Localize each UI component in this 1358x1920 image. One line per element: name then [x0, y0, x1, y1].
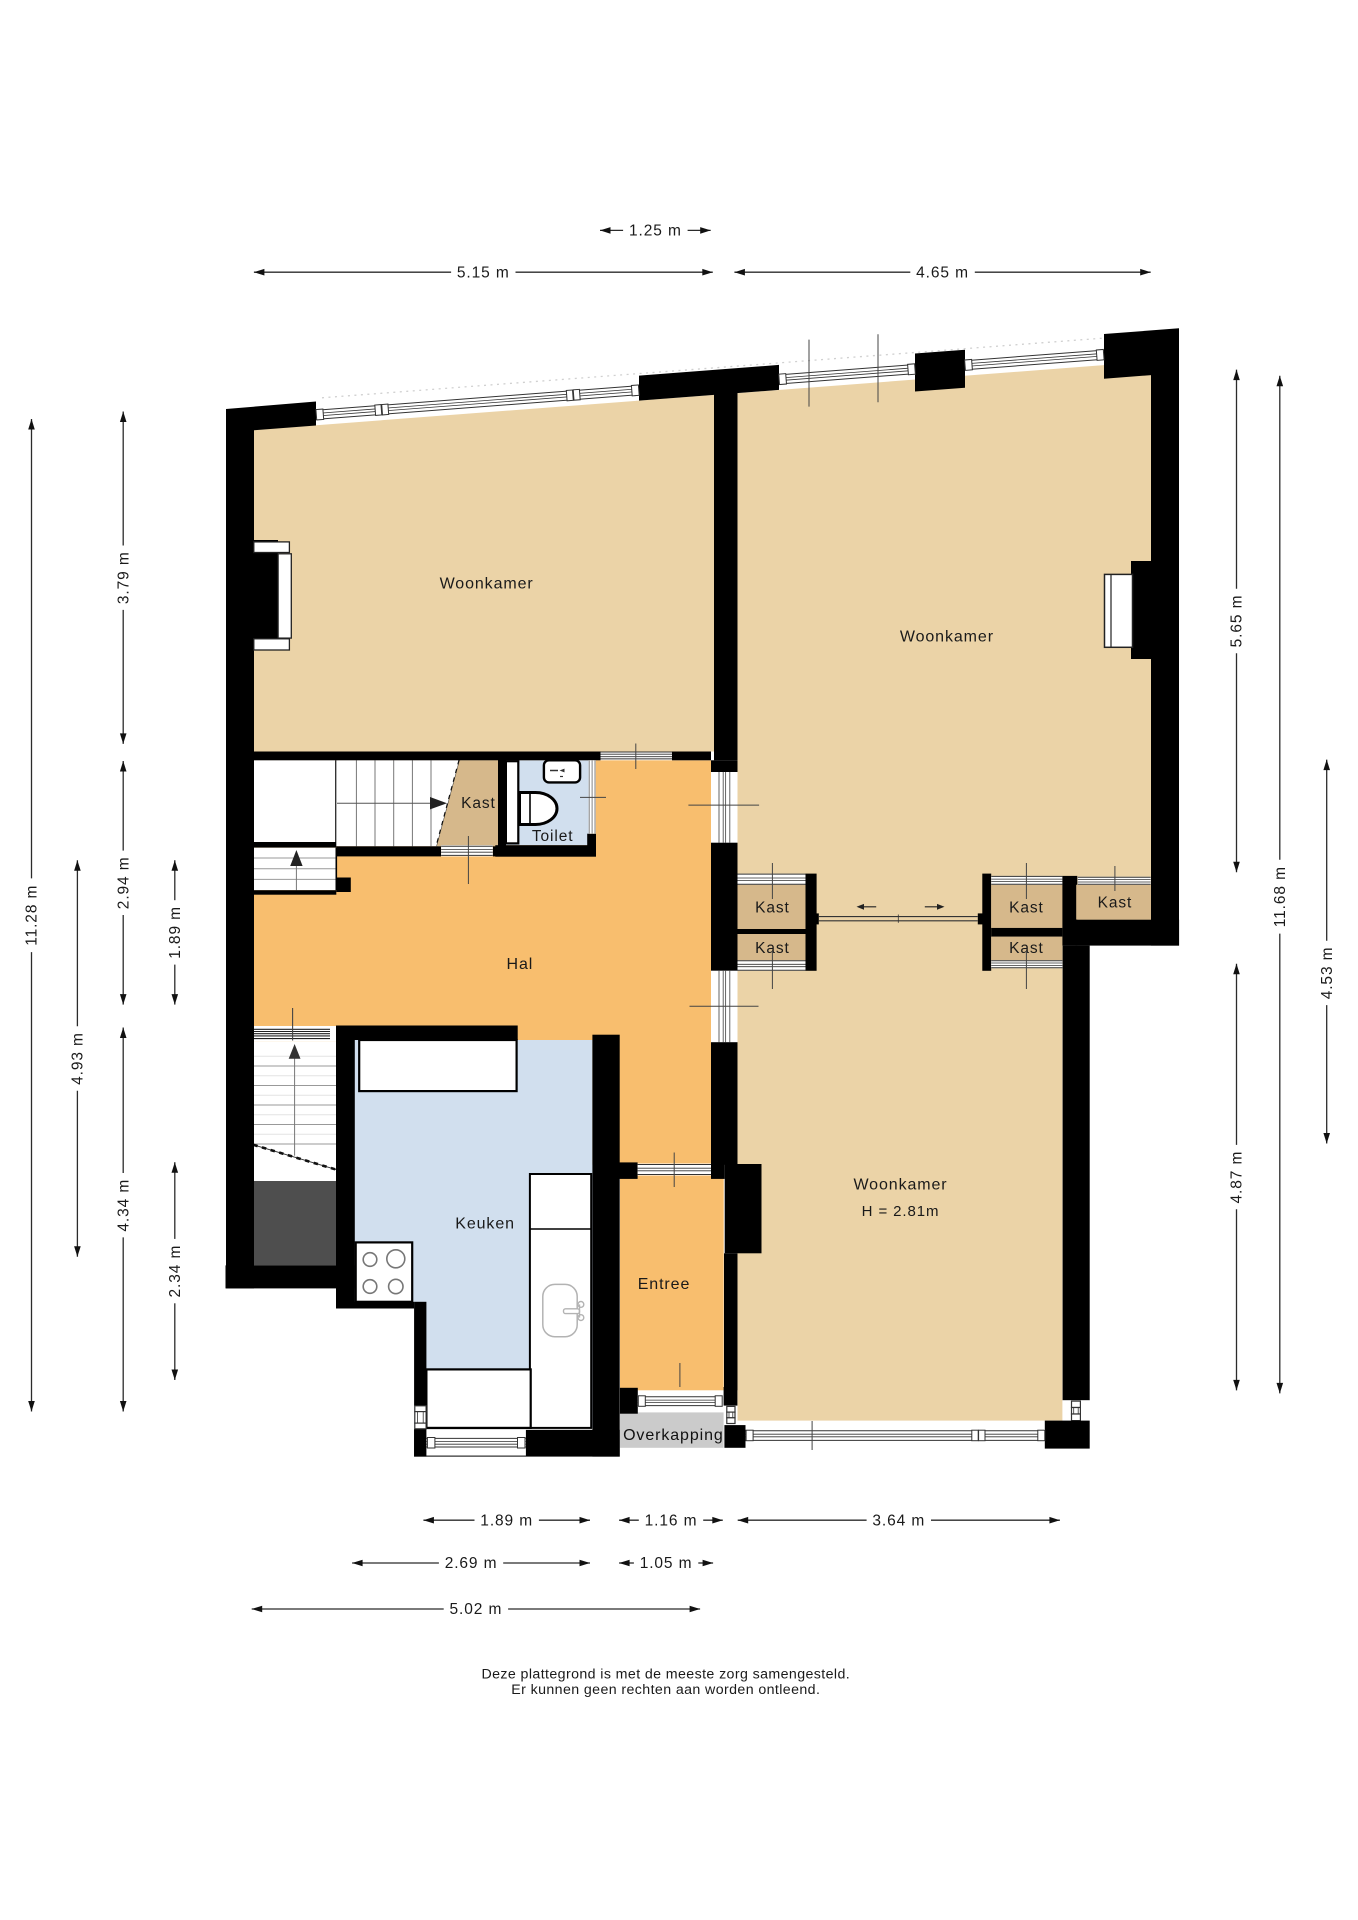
svg-text:Woonkamer: Woonkamer: [853, 1176, 947, 1193]
svg-text:3.79 m: 3.79 m: [115, 551, 132, 604]
svg-text:11.28 m: 11.28 m: [24, 885, 41, 946]
svg-text:4.93 m: 4.93 m: [70, 1032, 87, 1085]
svg-text:1.16 m: 1.16 m: [645, 1512, 698, 1529]
svg-text:2.69 m: 2.69 m: [445, 1555, 498, 1572]
svg-text:Deze plattegrond is met de mee: Deze plattegrond is met de meeste zorg s…: [482, 1666, 851, 1682]
svg-text:Overkapping: Overkapping: [623, 1427, 724, 1444]
svg-text:Kast: Kast: [461, 795, 496, 812]
svg-text:5.02 m: 5.02 m: [450, 1601, 503, 1618]
svg-text:5.15 m: 5.15 m: [457, 264, 510, 281]
svg-text:2.34 m: 2.34 m: [167, 1245, 184, 1298]
svg-text:4.53 m: 4.53 m: [1319, 947, 1336, 1000]
svg-text:4.34 m: 4.34 m: [115, 1179, 132, 1232]
svg-text:2.94 m: 2.94 m: [115, 856, 132, 909]
svg-text:Entree: Entree: [638, 1276, 691, 1293]
svg-text:4.65 m: 4.65 m: [916, 264, 969, 281]
svg-text:Keuken: Keuken: [455, 1216, 515, 1233]
svg-text:Hal: Hal: [507, 956, 534, 973]
svg-text:1.89 m: 1.89 m: [480, 1512, 533, 1529]
svg-text:5.65 m: 5.65 m: [1229, 595, 1246, 648]
svg-text:Er kunnen geen rechten aan wor: Er kunnen geen rechten aan worden ontlee…: [511, 1682, 820, 1698]
svg-text:3.64 m: 3.64 m: [872, 1512, 925, 1529]
svg-text:1.89 m: 1.89 m: [167, 906, 184, 959]
svg-text:1.05 m: 1.05 m: [640, 1555, 693, 1572]
svg-text:4.87 m: 4.87 m: [1229, 1151, 1246, 1204]
svg-text:1.25 m: 1.25 m: [629, 223, 682, 240]
svg-text:H = 2.81m: H = 2.81m: [862, 1203, 940, 1220]
svg-text:Woonkamer: Woonkamer: [900, 629, 994, 646]
svg-text:Kast: Kast: [1009, 900, 1044, 917]
svg-text:Woonkamer: Woonkamer: [440, 575, 534, 592]
svg-text:11.68 m: 11.68 m: [1272, 866, 1289, 927]
svg-text:Kast: Kast: [755, 900, 790, 917]
svg-text:Kast: Kast: [1098, 895, 1133, 912]
svg-text:Toilet: Toilet: [532, 828, 574, 845]
